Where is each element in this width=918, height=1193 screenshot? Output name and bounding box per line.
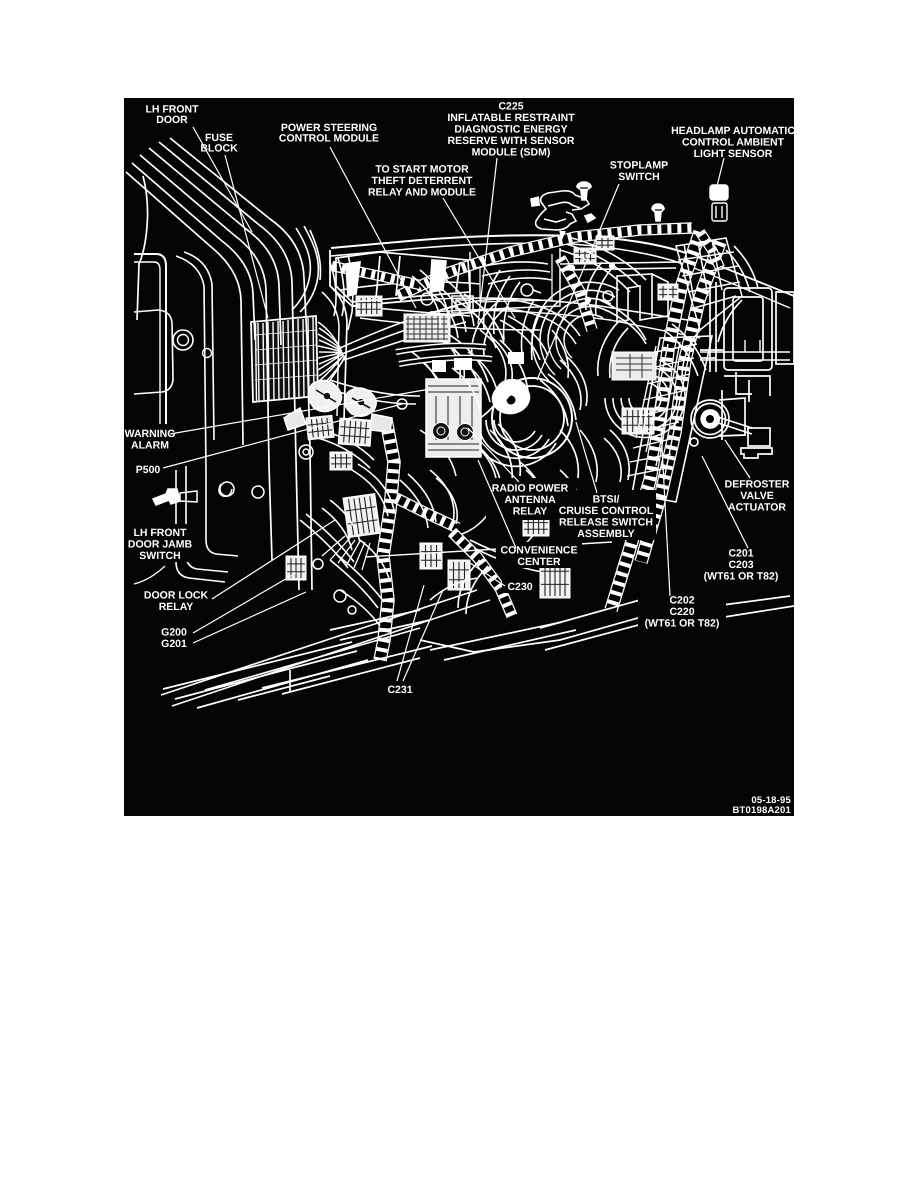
svg-text:C202: C202 — [669, 595, 694, 607]
svg-text:SWITCH: SWITCH — [618, 171, 659, 183]
svg-text:(WT61 OR T82): (WT61 OR T82) — [704, 571, 779, 583]
svg-text:HEADLAMP AUTOMATIC: HEADLAMP AUTOMATIC — [671, 125, 795, 137]
svg-text:RELAY: RELAY — [159, 601, 194, 613]
svg-text:SWITCH: SWITCH — [139, 550, 180, 562]
svg-text:DOOR JAMB: DOOR JAMB — [128, 539, 193, 551]
svg-text:RADIO POWER: RADIO POWER — [492, 483, 569, 495]
svg-text:CRUISE CONTROL: CRUISE CONTROL — [559, 505, 654, 517]
svg-text:C203: C203 — [728, 559, 753, 571]
svg-text:ALARM: ALARM — [131, 440, 169, 452]
svg-text:RELAY: RELAY — [513, 506, 548, 518]
svg-text:ANTENNA: ANTENNA — [504, 494, 556, 506]
svg-text:RELEASE SWITCH: RELEASE SWITCH — [559, 517, 653, 529]
svg-text:RESERVE WITH SENSOR: RESERVE WITH SENSOR — [448, 135, 575, 147]
svg-text:BTSI/: BTSI/ — [593, 494, 620, 506]
svg-text:CONTROL MODULE: CONTROL MODULE — [279, 133, 379, 145]
svg-text:(WT61 OR T82): (WT61 OR T82) — [645, 618, 720, 630]
svg-text:ACTUATOR: ACTUATOR — [728, 502, 786, 514]
svg-text:C220: C220 — [669, 606, 694, 618]
svg-text:LIGHT SENSOR: LIGHT SENSOR — [694, 148, 773, 160]
svg-text:BT0198A201: BT0198A201 — [732, 805, 791, 816]
svg-text:CONVENIENCE: CONVENIENCE — [500, 545, 577, 557]
svg-text:DOOR: DOOR — [156, 114, 188, 126]
svg-text:RELAY AND MODULE: RELAY AND MODULE — [368, 187, 476, 199]
svg-text:C201: C201 — [728, 548, 753, 560]
svg-text:INFLATABLE RESTRAINT: INFLATABLE RESTRAINT — [447, 112, 575, 124]
svg-text:G201: G201 — [161, 638, 187, 650]
svg-text:BLOCK: BLOCK — [200, 143, 238, 155]
svg-text:G200: G200 — [161, 627, 187, 639]
svg-text:ASSEMBLY: ASSEMBLY — [577, 528, 634, 540]
svg-text:P500: P500 — [136, 464, 161, 476]
svg-text:DIAGNOSTIC ENERGY: DIAGNOSTIC ENERGY — [454, 124, 567, 136]
svg-text:TO START MOTOR: TO START MOTOR — [375, 164, 469, 176]
svg-text:DEFROSTER: DEFROSTER — [725, 479, 790, 491]
svg-text:C225: C225 — [498, 101, 523, 113]
svg-text:LH FRONT: LH FRONT — [133, 527, 187, 539]
svg-text:C230: C230 — [507, 581, 532, 593]
svg-text:MODULE (SDM): MODULE (SDM) — [472, 147, 551, 159]
svg-text:DOOR LOCK: DOOR LOCK — [144, 590, 209, 602]
svg-text:C231: C231 — [387, 684, 412, 696]
svg-text:CONTROL AMBIENT: CONTROL AMBIENT — [682, 137, 785, 149]
svg-text:WARNING: WARNING — [125, 428, 176, 440]
svg-text:CENTER: CENTER — [517, 556, 561, 568]
svg-text:STOPLAMP: STOPLAMP — [610, 160, 668, 172]
svg-text:THEFT DETERRENT: THEFT DETERRENT — [372, 175, 474, 187]
svg-text:VALVE: VALVE — [740, 490, 773, 502]
